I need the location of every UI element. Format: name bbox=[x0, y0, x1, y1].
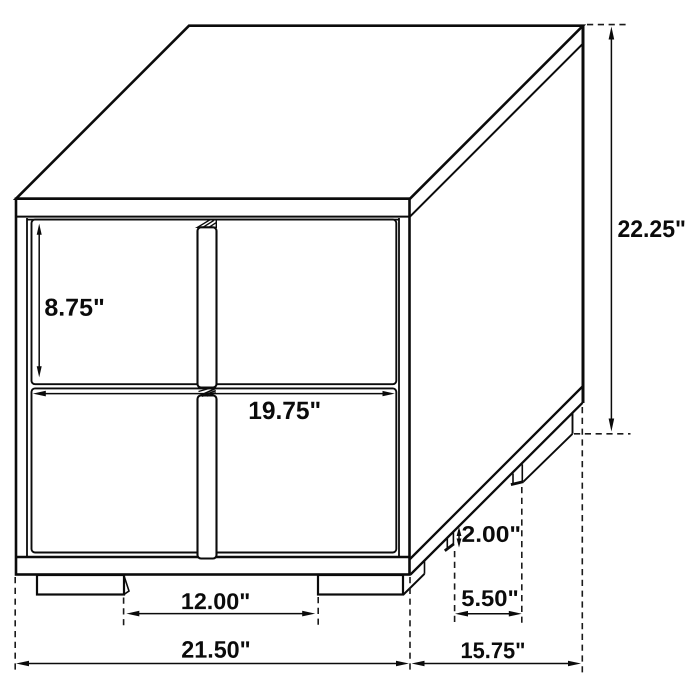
svg-text:8.75": 8.75" bbox=[44, 295, 105, 322]
svg-text:2.00": 2.00" bbox=[462, 521, 522, 547]
svg-text:21.50": 21.50" bbox=[181, 637, 251, 664]
svg-text:22.25": 22.25" bbox=[617, 216, 686, 243]
svg-text:12.00": 12.00" bbox=[181, 588, 251, 614]
svg-text:15.75": 15.75" bbox=[460, 637, 525, 663]
svg-text:5.50": 5.50" bbox=[461, 585, 519, 611]
svg-text:19.75": 19.75" bbox=[248, 397, 321, 425]
